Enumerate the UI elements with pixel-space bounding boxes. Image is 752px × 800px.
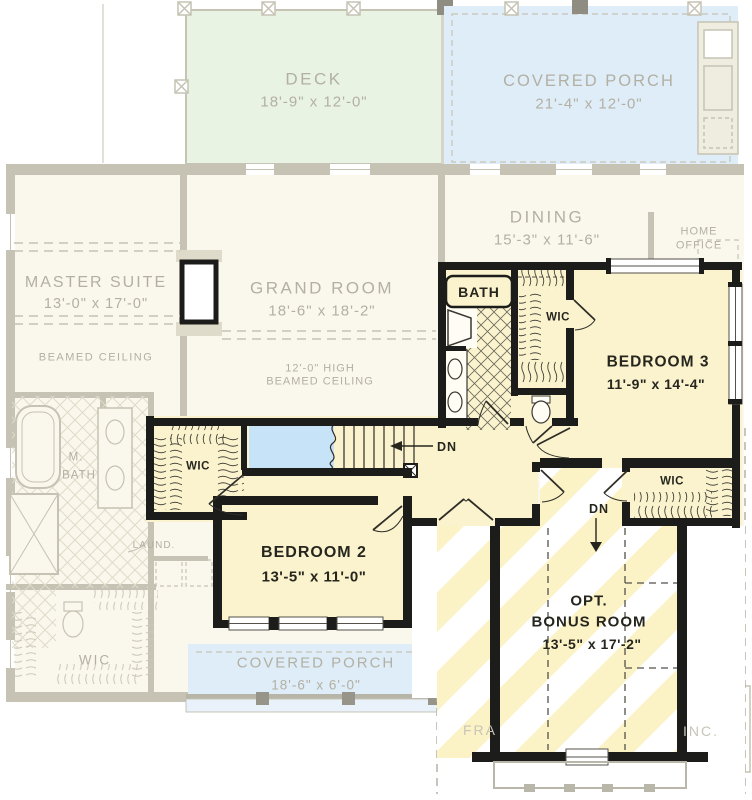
dining-dims: 15'-3" x 11'-6" xyxy=(494,233,600,248)
covered-porch-upper-label: COVERED PORCH xyxy=(503,73,675,90)
grand-room-label: GRAND ROOM xyxy=(250,280,394,297)
covered-porch-upper-dims: 21'-4" x 12'-0" xyxy=(535,97,642,112)
closet-right-label: WIC xyxy=(660,476,684,488)
floor-plan: DECK 18'-9" x 12'-0" COVERED PORCH 21'-4… xyxy=(0,0,752,800)
ghost-vanity xyxy=(98,408,132,508)
dining-label: DINING xyxy=(510,209,585,226)
deck-dims: 18'-9" x 12'-0" xyxy=(260,95,367,110)
outdoor-fireplace xyxy=(698,22,738,154)
watermark-fragment-left: FRA xyxy=(463,723,497,737)
bonus-room-label-2: BONUS ROOM xyxy=(532,615,647,630)
master-suite-label: MASTER SUITE xyxy=(25,275,167,291)
laundry-label: LAUND. xyxy=(133,541,176,551)
stairs-down-label: DN xyxy=(437,441,457,454)
ghost-toilet xyxy=(63,611,83,637)
bedroom-2-dims: 13'-5" x 11'-0" xyxy=(262,570,367,585)
home-office-label-1: HOME xyxy=(681,227,718,238)
grand-room-ceiling-note-2: BEAMED CEILING xyxy=(266,377,374,388)
dormer xyxy=(494,762,686,792)
bedroom-2-label: BEDROOM 2 xyxy=(261,545,367,561)
master-suite-ceiling-note: BEAMED CEILING xyxy=(39,353,154,364)
vanity xyxy=(444,350,467,424)
closet-left-label: WIC xyxy=(186,461,210,473)
bonus-room-dims: 13'-5" x 17'-2" xyxy=(542,637,641,651)
grand-room-dims: 18'-6" x 18'-2" xyxy=(268,304,375,319)
deck-label: DECK xyxy=(285,71,342,88)
ghost-tub xyxy=(16,406,60,488)
ghost-closet-label: WIC xyxy=(79,653,111,667)
home-office-label-2: OFFICE xyxy=(676,241,722,252)
bedroom-3-dims: 11'-9" x 14'-4" xyxy=(607,377,705,391)
bonus-room-label-1: OPT. xyxy=(570,594,607,609)
bonus-stairs-down-label: DN xyxy=(589,503,609,516)
bath-closet-label: WIC xyxy=(546,312,570,324)
master-suite-dims: 13'-0" x 17'-0" xyxy=(44,297,148,312)
chimney xyxy=(176,250,222,336)
master-bath-label-1: M. xyxy=(69,452,84,464)
covered-porch-lower-label: COVERED PORCH xyxy=(237,656,396,671)
master-bath-fixtures xyxy=(10,396,148,588)
covered-porch-lower-dims: 18'-6" x 6'-0" xyxy=(271,678,361,692)
toilet xyxy=(532,401,550,423)
bedroom-3-label: BEDROOM 3 xyxy=(607,354,710,370)
deck-area xyxy=(103,0,453,167)
bath-label: BATH xyxy=(458,285,500,299)
watermark-fragment-right: INC. xyxy=(683,724,719,738)
floor-plan-drawing xyxy=(0,0,752,800)
open-to-below xyxy=(249,424,334,468)
grand-room-ceiling-note-1: 12'-0" HIGH xyxy=(285,364,355,375)
master-bath-label-2: BATH xyxy=(62,470,96,482)
